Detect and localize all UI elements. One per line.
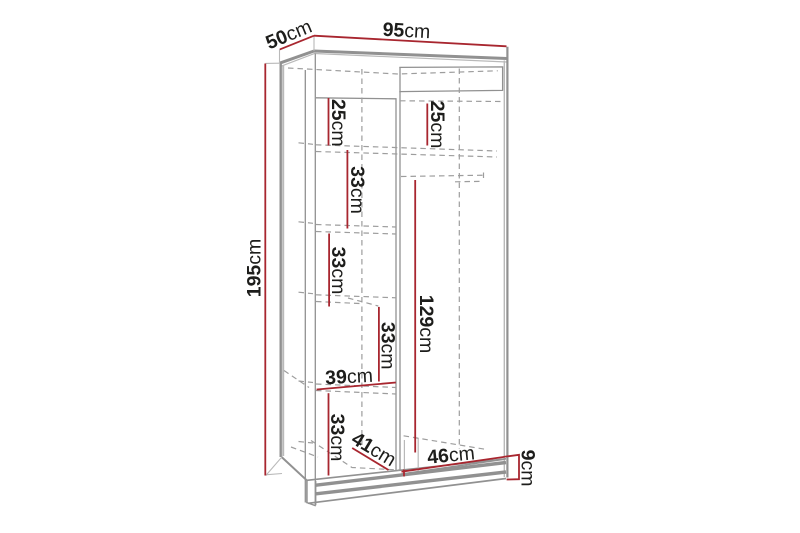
svg-text:46cm: 46cm	[426, 442, 476, 468]
svg-text:39cm: 39cm	[325, 365, 374, 389]
svg-text:25cm: 25cm	[327, 99, 349, 147]
svg-text:33cm: 33cm	[346, 166, 368, 214]
svg-text:41cm: 41cm	[348, 428, 400, 471]
svg-text:33cm: 33cm	[327, 247, 349, 295]
svg-text:25cm: 25cm	[426, 101, 448, 149]
svg-text:95cm: 95cm	[382, 19, 431, 43]
svg-text:50cm: 50cm	[263, 16, 315, 55]
svg-text:129cm: 129cm	[415, 295, 437, 354]
svg-text:195cm: 195cm	[244, 239, 266, 298]
svg-text:33cm: 33cm	[376, 322, 398, 370]
svg-text:33cm: 33cm	[326, 414, 348, 462]
svg-text:9cm: 9cm	[517, 450, 539, 487]
